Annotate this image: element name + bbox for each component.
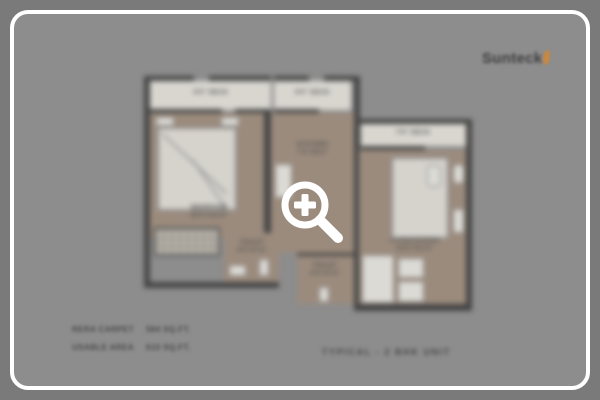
area-label: RERA CARPET xyxy=(72,325,146,334)
wall-bottom-right xyxy=(354,304,472,311)
zoom-in-button[interactable] xyxy=(277,177,347,247)
brand-logo: Sunteck xyxy=(482,50,549,67)
wall-bottom-left xyxy=(144,282,279,288)
bedroom1-sidetable-right xyxy=(221,117,239,126)
bed-fold-line-2 xyxy=(191,159,227,209)
deck-2-label: 8'0" DECK xyxy=(274,89,351,97)
deck-3-label: 7'6" DECK xyxy=(369,129,457,137)
area-value: 584 SQ.FT. xyxy=(146,325,216,334)
bed-pillow xyxy=(427,165,441,187)
area-label: USABLE AREA xyxy=(72,343,146,352)
toilet1-sink xyxy=(229,265,246,276)
area-table-row: USABLE AREA 610 SQ.FT. xyxy=(72,338,216,356)
brand-logo-text: Sunteck xyxy=(482,50,542,67)
living-bed xyxy=(391,157,449,239)
bedroom1-bed xyxy=(157,127,237,211)
toilet1-wc xyxy=(259,259,269,276)
area-table: RERA CARPET 584 SQ.FT. USABLE AREA 610 S… xyxy=(72,320,216,356)
plan-caption: TYPICAL - 2 BHK UNIT xyxy=(322,347,451,357)
kitchen-appliance-1 xyxy=(398,258,424,278)
kitchen-label: KITCHEN 7'6"X8'0" xyxy=(274,141,351,156)
brand-logo-accent-mark xyxy=(543,51,550,64)
bedroom1-wardrobe xyxy=(154,227,220,256)
bedroom1-label: BEDROOM 10'0"X11'6" xyxy=(164,204,254,219)
toilet2-wc xyxy=(319,287,329,302)
area-value: 610 SQ.FT. xyxy=(146,343,216,352)
kitchen-appliance-2 xyxy=(398,281,424,302)
bedroom1-sidetable-left xyxy=(156,117,174,126)
living-side-fixture xyxy=(453,164,464,184)
wall-right xyxy=(466,119,472,309)
magnifier-plus-icon xyxy=(277,177,347,247)
floor-plan-card: 8'0" DECK 8'0" DECK 7'6" DECK BEDROOM 10… xyxy=(10,10,590,390)
toilet1-label: TOILET 4'0"X7'6" xyxy=(227,239,277,254)
deck-1-label: 8'0" DECK xyxy=(167,89,255,97)
area-table-row: RERA CARPET 584 SQ.FT. xyxy=(72,320,216,338)
toilet2-label: TOILET 4'0"X7'6" xyxy=(299,262,351,277)
living-label: LIVING/DINING 10'6"X11'0" xyxy=(367,237,463,252)
living-wardrobe-strip xyxy=(453,209,464,233)
kitchen-platform xyxy=(362,255,394,303)
